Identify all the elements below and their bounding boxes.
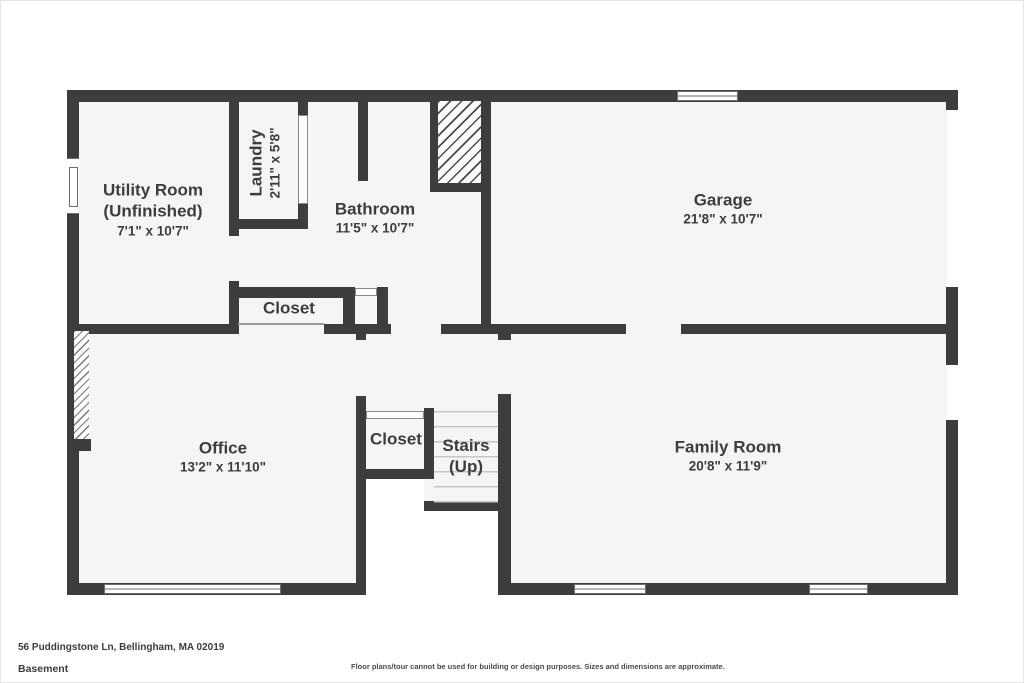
family-bottom-window-2-symbol [809,584,868,594]
footer-address: 56 Puddingstone Ln, Bellingham, MA 02019 [18,642,224,653]
footer-level-name: Basement [18,663,68,675]
utility-window-inner [69,167,78,207]
wall-exterior-right-lower [946,420,958,595]
room-name: Office [199,437,247,458]
room-name: Garage [694,189,753,210]
room-label-laundry: Laundry 2'11" x 5'8" [245,127,284,198]
room-dims: 21'8" x 10'7" [683,211,762,229]
room-name-2: (Up) [449,456,483,477]
room-label-garage: Garage 21'8" x 10'7" [683,189,762,228]
floorplan-page: Utility Room (Unfinished) 7'1" x 10'7" L… [0,0,1024,683]
wall-hatch-bottom-stub [79,439,91,451]
wall-bathroom-partial [358,101,368,181]
wall-utility-right-upper [229,101,239,236]
room-name-2: (Unfinished) [103,201,202,222]
room-label-office: Office 13'2" x 11'10" [180,437,266,476]
wall-garage-left [481,101,491,334]
office-bottom-window-symbol [104,584,281,594]
room-dims: 13'2" x 11'10" [180,459,266,477]
shaft-window-symbol [355,288,377,296]
wall-family-left-stub [498,334,511,340]
wall-closet-lower-bottom [356,469,434,479]
room-label-family-room: Family Room 20'8" x 11'9" [675,436,782,475]
wall-exterior-top [67,90,958,102]
wall-office-right [356,396,366,595]
room-dims: 2'11" x 5'8" [267,127,285,198]
room-name: Stairs [442,435,489,456]
footer-disclaimer: Floor plans/tour cannot be used for buil… [351,662,725,671]
wall-middle-a [67,324,238,334]
wall-middle-e [681,324,958,334]
wall-middle-c [441,324,511,334]
floor-upper-level [79,101,947,329]
family-bottom-window-1-symbol [574,584,646,594]
room-name: Family Room [675,436,782,457]
stair-void-hatch [438,101,481,183]
floor-hallway [366,329,498,411]
room-label-closet-lower: Closet [370,428,422,449]
room-name: Bathroom [335,198,415,219]
wall-exterior-right-upper [946,90,958,110]
wall-laundry-bottom [229,219,308,229]
room-label-utility: Utility Room (Unfinished) 7'1" x 10'7" [103,180,203,241]
wall-middle-b [324,324,391,334]
room-dims: 20'8" x 11'9" [689,458,768,476]
room-dims: 11'5" x 10'7" [336,220,415,238]
room-label-closet-upper: Closet [263,297,315,318]
closet-upper-door-threshold [238,323,324,325]
room-name: Closet [263,297,315,318]
wall-family-left [498,394,511,595]
room-label-bathroom: Bathroom 11'5" x 10'7" [335,198,415,237]
room-name: Utility Room [103,180,203,201]
closet-lower-door-opening [366,411,424,419]
utility-window-symbol [67,158,79,214]
wall-laundry-right-stub [298,101,308,115]
wall-stair-void-left [430,101,438,192]
wall-middle-d [511,324,626,334]
wall-closet-upper-top [229,287,351,298]
room-name: Laundry [245,129,266,196]
room-label-stairs: Stairs (Up) [442,435,489,478]
garage-top-window-symbol [677,91,738,101]
laundry-door-opening [298,115,308,204]
room-dims: 7'1" x 10'7" [117,222,189,240]
room-name: Closet [370,428,422,449]
wall-hatch-office-left [74,331,89,439]
wall-office-right-stub [356,334,366,340]
wall-exterior-bottom-right [498,583,958,595]
